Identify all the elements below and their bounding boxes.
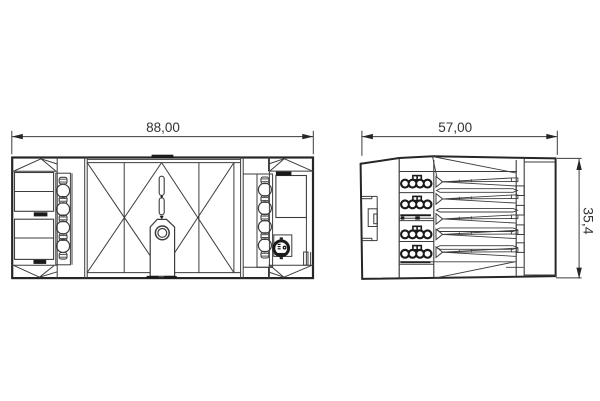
svg-text:35,4: 35,4 bbox=[581, 207, 597, 234]
svg-text:88,00: 88,00 bbox=[146, 120, 180, 135]
svg-text:57,00: 57,00 bbox=[438, 120, 472, 135]
